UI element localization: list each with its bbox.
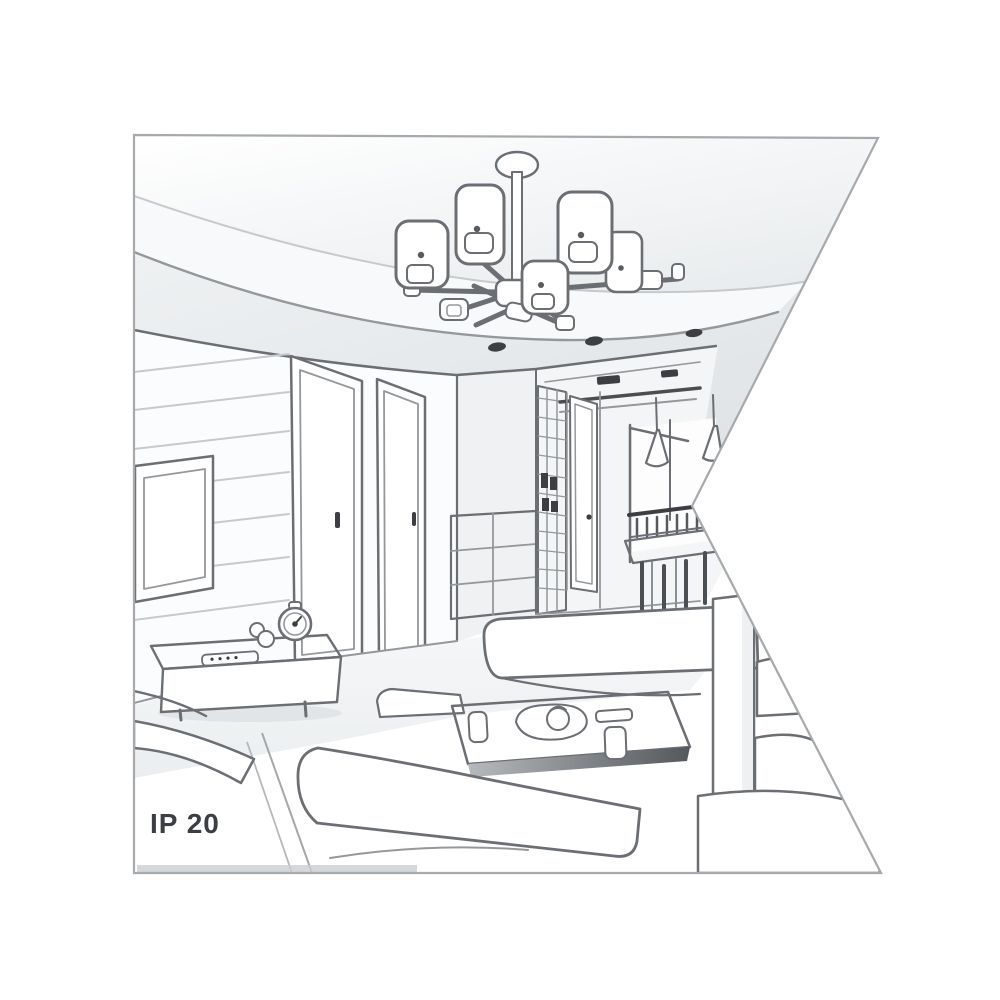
sofa-back-armrest [377, 689, 464, 717]
ip-rating-label: IP 20 [150, 808, 220, 839]
cup [604, 727, 626, 760]
door-handle [335, 512, 340, 528]
tv [135, 456, 213, 602]
room-illustration: IP 20 [0, 0, 1000, 1000]
product-image: IP 20 [0, 0, 1000, 1000]
hall-side-wall [457, 369, 536, 642]
door-handle [412, 512, 416, 526]
door-handle [586, 514, 591, 519]
tray-item [596, 709, 633, 722]
lamp-front-shade [522, 261, 568, 314]
lamp-stem [512, 172, 522, 284]
hallway-door [567, 393, 597, 592]
base-shadow-strip [137, 865, 417, 873]
sofa-right [698, 595, 880, 873]
door-right [377, 379, 425, 661]
cup [468, 712, 488, 743]
